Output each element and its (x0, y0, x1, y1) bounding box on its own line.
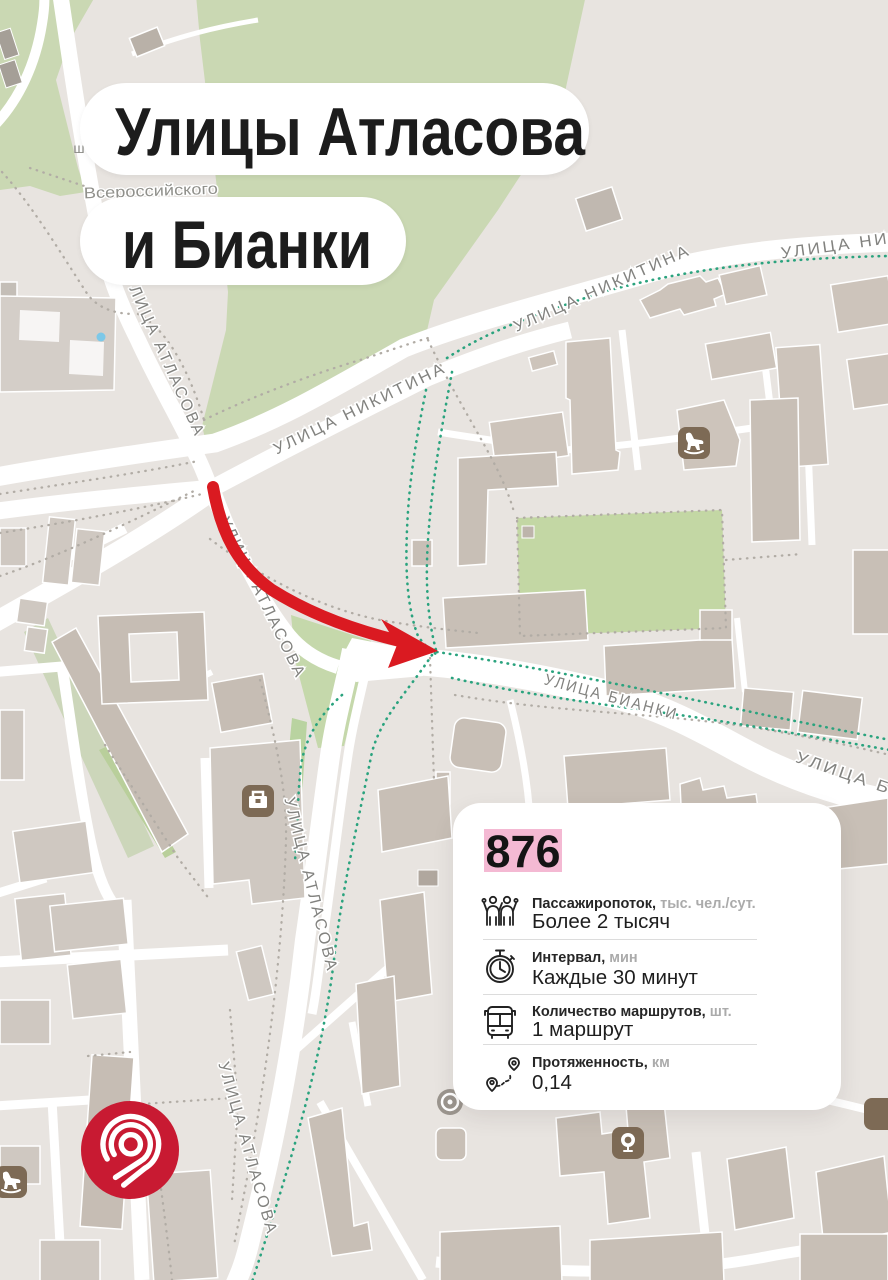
svg-text:и Бианки: и Бианки (122, 207, 372, 283)
svg-text:Улицы Атласова: Улицы Атласова (115, 94, 586, 170)
